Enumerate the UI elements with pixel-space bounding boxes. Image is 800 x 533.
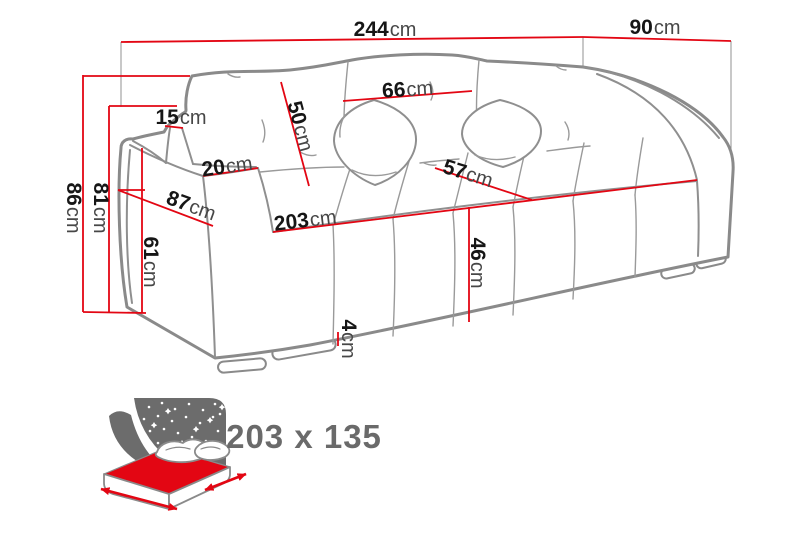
sleeper-function-icon [101,398,246,509]
sofa-dimension-diagram: 244cm 90cm 66cm 50cm 15cm 20cm 87cm 86cm… [0,0,800,533]
dim-label-seat-height: 46cm [466,237,489,288]
dim-label-armrest-front-height: 61cm [139,236,162,287]
sofa-leg [218,358,267,373]
diagram-canvas: 244cm 90cm 66cm 50cm 15cm 20cm 87cm 86cm… [0,0,800,533]
dim-label-back-cushion-width: 66cm [381,76,434,103]
dim-label-leg-height: 4cm [337,319,360,358]
dim-label-total-height: 86cm [62,182,85,233]
dim-label-overall-width: 244cm [354,18,417,41]
dim-tick-heights-bottom [83,312,146,313]
dim-label-armrest-back-width: 15cm [155,106,206,129]
dim-line-overall-width [121,37,583,42]
dim-label-overall-depth: 90cm [629,16,680,39]
bed-icon-pillow [195,441,230,460]
dim-label-arm-height: 81cm [89,182,112,233]
sleeping-area-label: 203 x 135 [226,418,382,455]
